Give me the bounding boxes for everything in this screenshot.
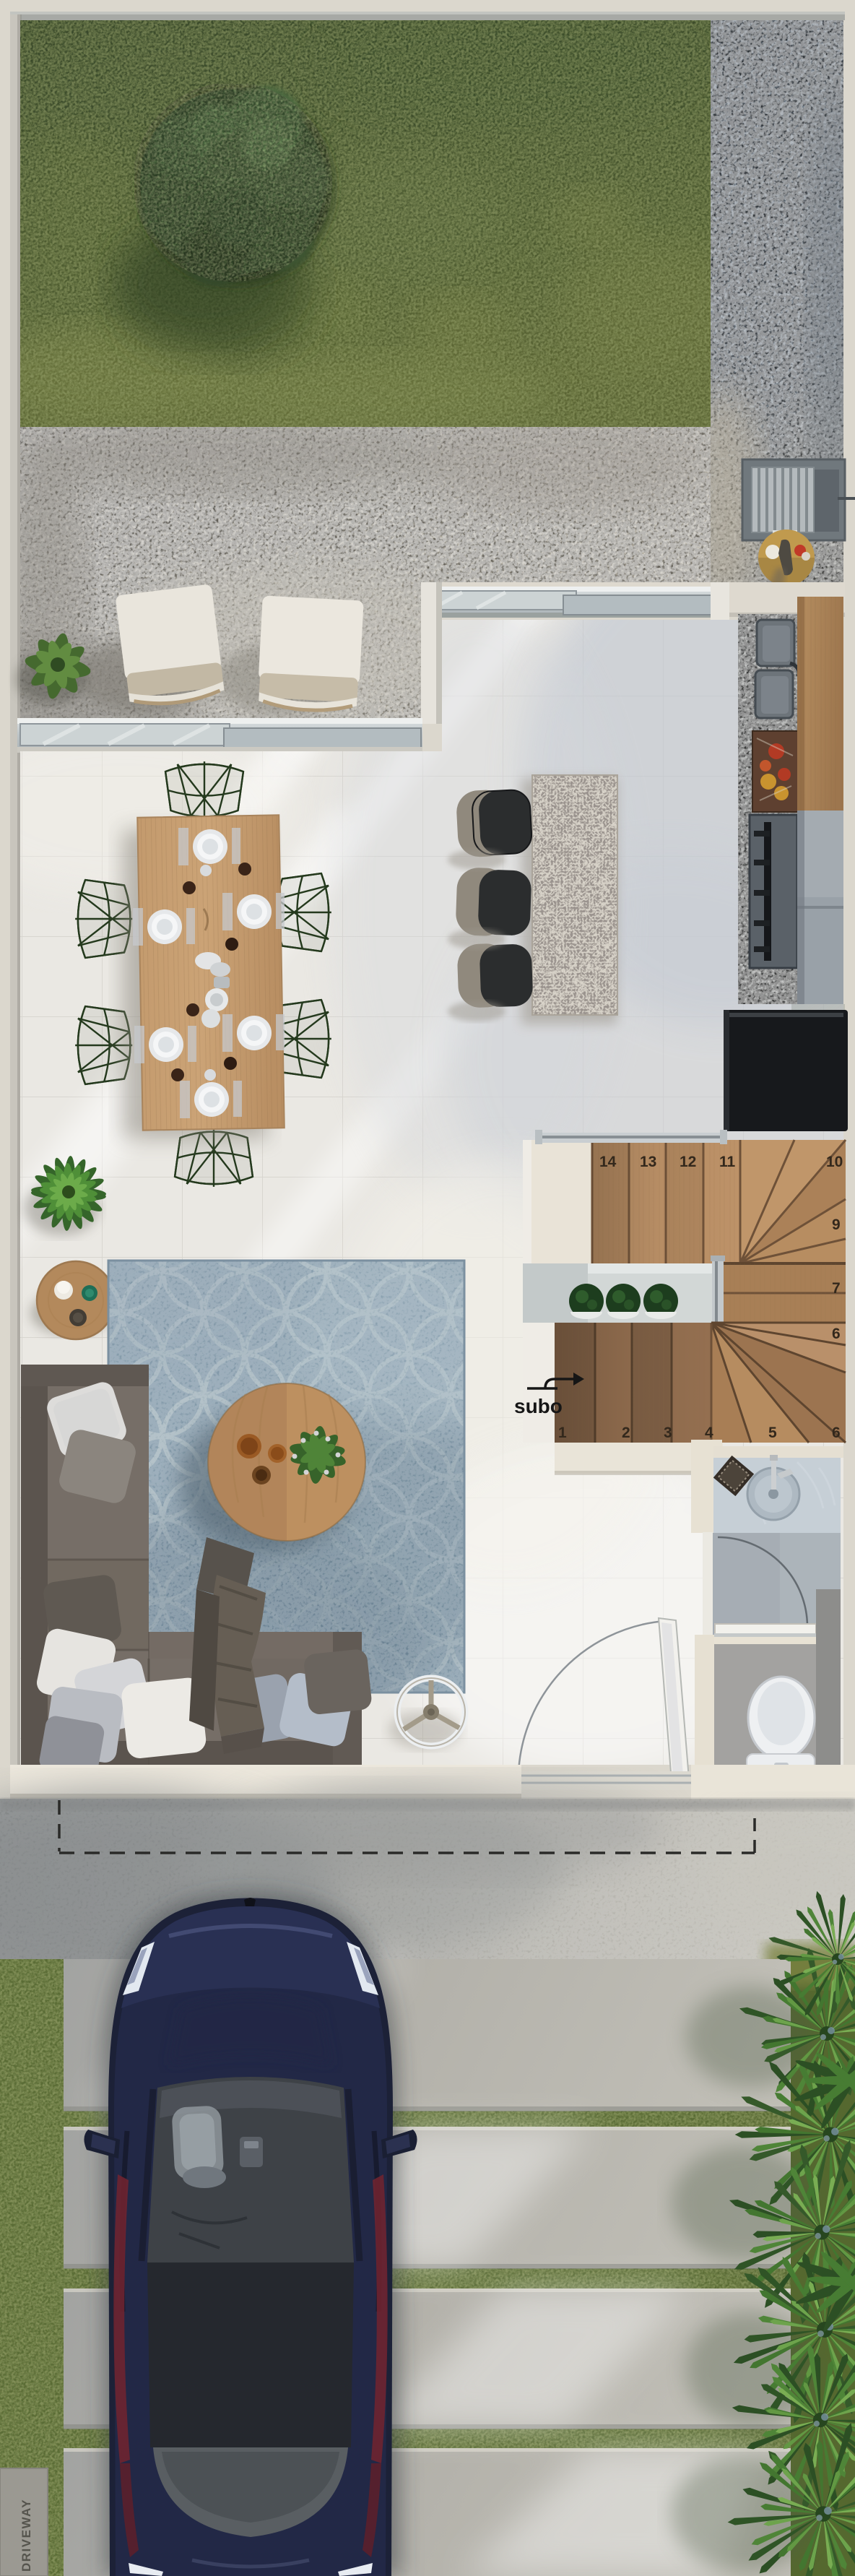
- svg-text:14: 14: [599, 1154, 617, 1170]
- svg-text:1: 1: [558, 1425, 567, 1441]
- svg-text:13: 13: [640, 1154, 656, 1170]
- svg-text:7: 7: [832, 1280, 841, 1297]
- svg-text:5: 5: [768, 1425, 777, 1441]
- svg-text:10: 10: [826, 1154, 843, 1170]
- svg-text:subo: subo: [514, 1395, 563, 1417]
- svg-text:6: 6: [832, 1425, 841, 1441]
- svg-text:4: 4: [705, 1425, 713, 1441]
- svg-text:11: 11: [719, 1154, 736, 1170]
- svg-text:12: 12: [680, 1154, 696, 1170]
- svg-text:6: 6: [832, 1326, 841, 1342]
- svg-text:DRIVEWAY: DRIVEWAY: [19, 2499, 33, 2572]
- svg-text:3: 3: [664, 1425, 672, 1441]
- svg-text:2: 2: [622, 1425, 630, 1441]
- svg-text:9: 9: [832, 1216, 841, 1233]
